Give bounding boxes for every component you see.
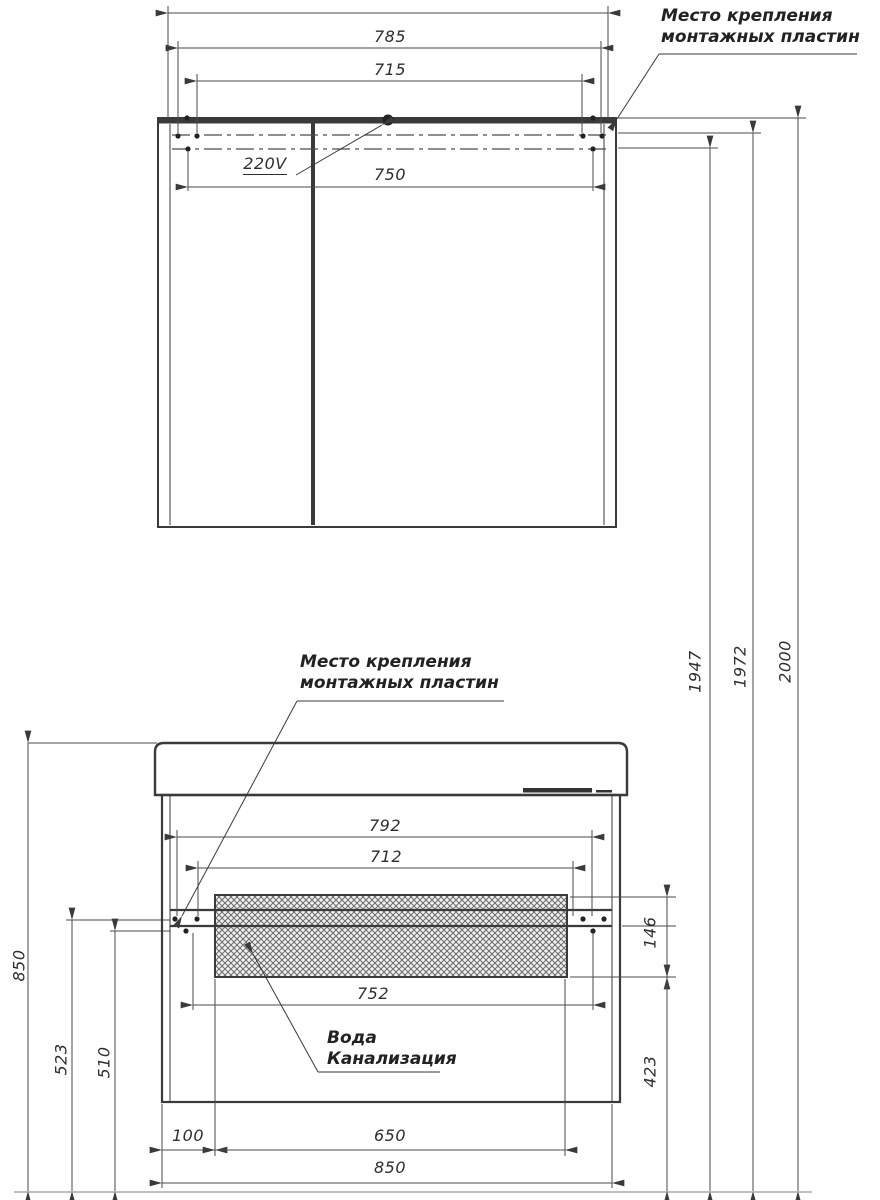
- vanity-countertop: [155, 743, 627, 795]
- left-height-dimensions: [28, 743, 170, 1191]
- dim-2000: 2000: [776, 632, 795, 692]
- mount-note-mid-line2: монтажных пластин: [300, 673, 499, 694]
- mount-note-mid-line1: Место крепления: [300, 652, 499, 673]
- mount-note-mid-leader: [182, 701, 504, 916]
- dim-510: 510: [95, 1033, 114, 1093]
- dim-792: 792: [350, 816, 420, 835]
- power-socket-point: [383, 115, 394, 126]
- mount-note-mid: Место крепления монтажных пластин: [300, 652, 499, 695]
- dim-850-bottom: 850: [355, 1158, 425, 1177]
- water-note-line2: Канализация: [327, 1049, 457, 1070]
- mount-note-top-line2: монтажных пластин: [661, 27, 860, 48]
- dim-715: 715: [355, 60, 425, 79]
- dim-850-left: 850: [10, 936, 29, 996]
- mount-note-top-leader: [617, 54, 857, 119]
- mount-note-top-line1: Место крепления: [661, 6, 860, 27]
- installation-drawing: 785 715 750 220V Место крепления монтажн…: [0, 0, 880, 1200]
- utility-zone-hatch: [215, 895, 567, 977]
- dim-523: 523: [52, 1030, 71, 1090]
- dim-785: 785: [355, 27, 425, 46]
- power-socket-label: 220V: [235, 154, 295, 173]
- dim-712: 712: [351, 847, 421, 866]
- water-note: Вода Канализация: [327, 1028, 457, 1071]
- dim-423: 423: [641, 1042, 660, 1102]
- dim-650: 650: [355, 1126, 425, 1145]
- dim-750: 750: [355, 165, 425, 184]
- dim-1947: 1947: [686, 642, 705, 702]
- mount-note-top: Место крепления монтажных пластин: [661, 6, 860, 49]
- dim-752: 752: [338, 984, 408, 1003]
- dim-100: 100: [153, 1126, 223, 1145]
- water-note-line1: Вода: [327, 1028, 457, 1049]
- drawing-linework: [0, 0, 880, 1200]
- dim-1972: 1972: [731, 637, 750, 697]
- mirror-cabinet-hinge-axes: [172, 135, 608, 149]
- dim-146: 146: [641, 903, 660, 963]
